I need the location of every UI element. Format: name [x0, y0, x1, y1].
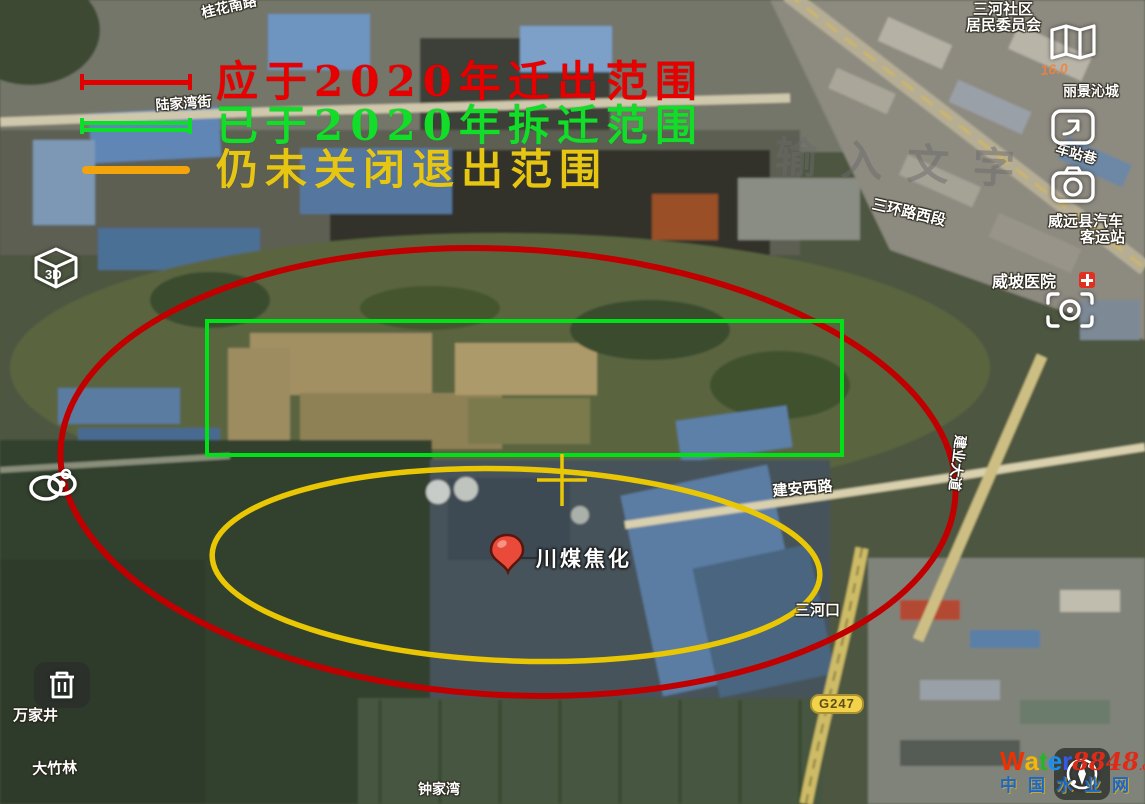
- delete-annotation-button[interactable]: [34, 662, 90, 708]
- watermark-logo-number: 8848: [1072, 747, 1139, 776]
- watermark-logo-word: Water: [1000, 746, 1072, 776]
- legend-line-swatch: [82, 166, 190, 174]
- highway-shield-g247: G247: [810, 694, 864, 714]
- legend-label: 仍未关闭退出范围: [216, 149, 608, 191]
- legend: 应于2020年迁出范围已于2020年拆迁范围仍未关闭退出范围: [82, 60, 704, 192]
- legend-row: 应于2020年迁出范围: [82, 60, 704, 104]
- watermark-logo-letter: r: [1062, 748, 1072, 774]
- screenshot-button[interactable]: [1050, 108, 1096, 146]
- hospital-cross-icon: [1079, 272, 1095, 288]
- traffic-layers-button[interactable]: [24, 466, 82, 506]
- legend-line-swatch: [82, 121, 190, 132]
- site-watermark-line2: 中国水业网: [1000, 777, 1145, 794]
- legend-row: 已于2020年拆迁范围: [82, 104, 704, 148]
- map-viewport[interactable]: 应于2020年迁出范围已于2020年拆迁范围仍未关闭退出范围 桂花南路陆家湾街三…: [0, 0, 1145, 804]
- legend-row: 仍未关闭退出范围: [82, 148, 704, 192]
- view-3d-button[interactable]: 3D: [30, 246, 82, 290]
- panorama-camera-button[interactable]: [1044, 290, 1096, 330]
- watermark-logo-letter: t: [1039, 748, 1048, 774]
- legend-label: 已于2020年拆迁范围: [216, 105, 704, 147]
- legend-line-swatch: [82, 80, 190, 85]
- watermark-logo-letter: W: [1000, 748, 1025, 774]
- camera-button[interactable]: [1050, 166, 1096, 204]
- site-watermark-line1: Water8848.com: [1000, 748, 1145, 774]
- poi-pin-icon[interactable]: [489, 533, 525, 575]
- view-3d-label: 3D: [45, 267, 62, 282]
- watermark-logo-suffix: .com: [1139, 761, 1145, 773]
- watermark-logo-letter: a: [1025, 748, 1039, 774]
- watermark-logo-letter: e: [1048, 748, 1062, 774]
- legend-label: 应于2020年迁出范围: [216, 61, 704, 103]
- site-watermark: Water8848.com 中国水业网: [1000, 748, 1145, 794]
- map-mode-button[interactable]: [1048, 22, 1098, 62]
